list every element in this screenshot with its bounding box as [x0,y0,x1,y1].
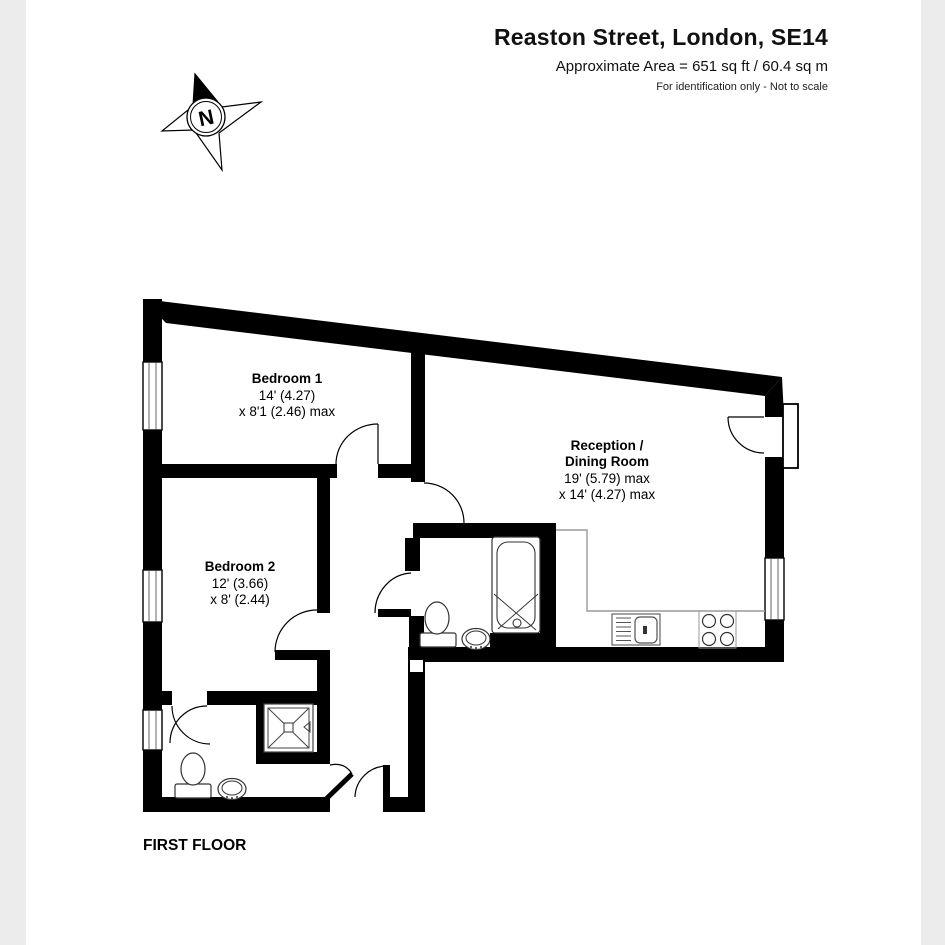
bedroom1-name: Bedroom 1 [252,371,323,386]
room-label-bedroom1: Bedroom 1 14' (4.27) x 8'1 (2.46) max [239,371,336,419]
basin-symbol [218,779,246,800]
bedroom2-name: Bedroom 2 [205,559,276,574]
kitchen-area [556,530,765,648]
compass-north-icon: N [162,74,261,170]
bedroom1-window [143,362,162,430]
wall-notch [410,660,423,672]
floor-plan: N [0,0,945,945]
bedroom2-dim2: x 8' (2.44) [210,592,270,607]
counter-edge [556,530,765,611]
hob-symbol [699,611,736,648]
room-label-reception: Reception / Dining Room 19' (5.79) max x… [559,438,656,502]
reception-dim2: x 14' (4.27) max [559,487,656,502]
bedroom2-dim1: 12' (3.66) [212,576,269,591]
toilet-symbol [420,602,456,647]
basin-symbol [462,629,490,650]
floor-label: FIRST FLOOR [143,837,246,854]
bathroom-fixtures [420,537,540,650]
bedroom1-dim2: x 8'1 (2.46) max [239,404,336,419]
walls [143,299,784,812]
bedroom2-window [143,570,162,622]
toilet-symbol [175,753,211,798]
reception-name-line1: Reception / [571,438,644,453]
reception-window [765,558,784,620]
entrance-door-recess [783,404,798,468]
reception-name-line2: Dining Room [565,454,649,469]
reception-dim1: 19' (5.79) max [564,471,650,486]
bedroom1-dim1: 14' (4.27) [259,388,316,403]
wc-window [143,710,162,750]
room-label-bedroom2: Bedroom 2 12' (3.66) x 8' (2.44) [205,559,276,607]
bathtub-symbol [492,537,540,633]
wc-fixtures [175,704,313,800]
kitchen-sink-symbol [612,614,660,645]
shower-tray-symbol [264,704,313,752]
room-labels: Bedroom 1 14' (4.27) x 8'1 (2.46) max Re… [205,371,656,607]
